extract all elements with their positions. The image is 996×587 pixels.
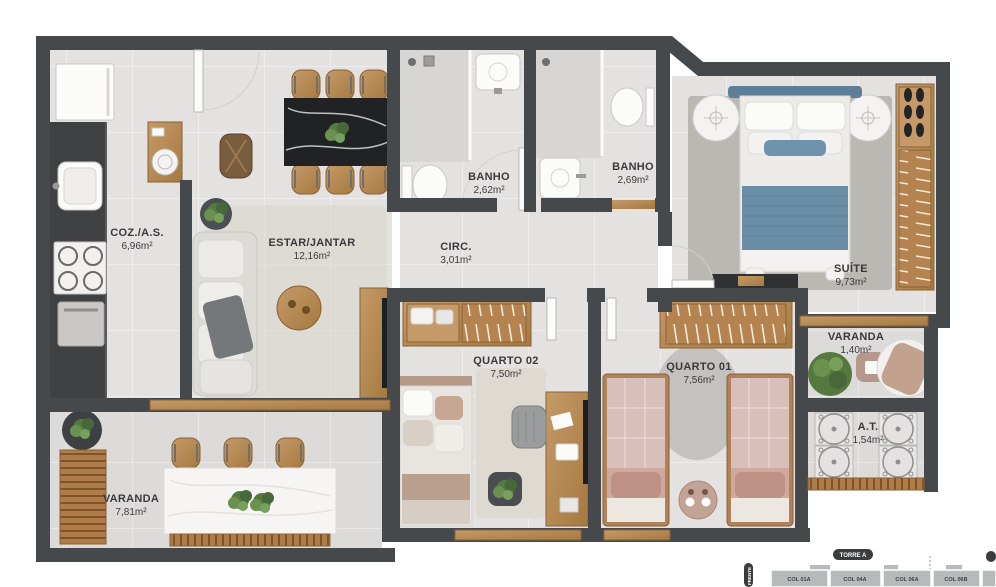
room-name: VARANDA [103, 492, 159, 506]
room-label-banho-1: BANHO 2,62m² [468, 170, 510, 197]
room-label-banho-2: BANHO 2,69m² [612, 160, 654, 187]
wall-bottom [36, 548, 395, 562]
room-label-area-tecnica: A.T. 1,54m² [852, 420, 883, 447]
balcony-bench [170, 534, 330, 546]
ac-condenser [815, 446, 853, 478]
wall-top-right [700, 62, 950, 76]
room-label-circulacao: CIRC. 3,01m² [440, 240, 471, 267]
bedroom2-blanket [402, 474, 470, 504]
bath2-shower-head [542, 58, 550, 66]
keyplan: TORRE A FRENTE COL 01A COL 04A COL 06A C… [744, 549, 996, 587]
bedroom1-side-table [679, 481, 717, 519]
balcony-table [164, 468, 336, 534]
suite-balcony-sliding-door[interactable] [800, 316, 928, 326]
room-name: QUARTO 01 [666, 360, 731, 374]
room-name: BANHO [468, 170, 510, 184]
room-name: BANHO [612, 160, 654, 174]
wall-left [36, 36, 50, 562]
room-area: 3,01m² [440, 254, 471, 267]
coffee-table [277, 286, 321, 330]
unit-label: COL 01A [787, 577, 810, 583]
bath1-shower-head [408, 58, 416, 66]
bedroom2-headboard [400, 376, 472, 386]
suite-bed-cushion [764, 140, 826, 156]
suite-wardrobe-hangers [899, 150, 931, 287]
fridge [56, 64, 114, 120]
bath1-basin [476, 54, 520, 90]
bedroom1-window [604, 530, 670, 540]
washing-machine [152, 149, 178, 175]
room-area: 1,40m² [828, 344, 884, 357]
room-area: 1,54m² [852, 434, 883, 447]
bath2-threshold [612, 200, 655, 209]
room-area: 2,62m² [468, 184, 510, 197]
entry-door[interactable] [194, 50, 203, 112]
room-area: 6,96m² [110, 240, 163, 253]
room-name: A.T. [852, 420, 883, 434]
unit-label: COL 06A [895, 577, 918, 583]
keyplan-side-label: FRENTE [747, 567, 752, 585]
room-area: 2,69m² [612, 174, 654, 187]
keyplan-units [771, 565, 996, 587]
bedroom2-window [455, 530, 581, 540]
room-area: 9,73m² [834, 276, 868, 289]
room-name: ESTAR/JANTAR [269, 236, 356, 250]
balcony-sliding-door[interactable] [150, 400, 390, 410]
bedroom2-door[interactable] [547, 298, 556, 340]
bedroom2-wardrobe-hangers [462, 304, 526, 342]
room-name: QUARTO 02 [473, 354, 538, 368]
room-area: 7,50m² [473, 368, 538, 381]
room-label-estar-jantar: ESTAR/JANTAR 12,16m² [269, 236, 356, 263]
bedroom1-bed-left [603, 374, 669, 526]
tower-a-label: TORRE A [840, 553, 867, 559]
room-area: 12,16m² [269, 250, 356, 263]
tech-area-louver [808, 478, 924, 490]
bath2-basin [540, 158, 580, 198]
room-label-varanda-suite: VARANDA 1,40m² [828, 330, 884, 357]
bath2-shower-floor [536, 50, 602, 158]
kitchen-faucet [53, 183, 60, 190]
suite-door[interactable] [672, 280, 714, 288]
room-area: 7,81m² [103, 506, 159, 519]
unit-label: COL 04A [843, 577, 866, 583]
room-name: COZ./A.S. [110, 226, 163, 240]
bath1-shower-floor [400, 50, 470, 162]
wall-right [936, 62, 950, 328]
bedroom1-wardrobe-hangers [666, 304, 786, 344]
ac-condenser [879, 446, 917, 478]
room-label-quarto-02: QUARTO 02 7,50m² [473, 354, 538, 381]
bath2-toilet [611, 88, 643, 126]
tower-pill-cut [986, 551, 996, 562]
wall-top [36, 36, 662, 50]
balcony-plant [808, 352, 852, 396]
balcony-slat-bench [60, 450, 106, 544]
ac-condenser [815, 413, 853, 445]
unit-label: COL 06B [944, 577, 967, 583]
room-name: SUÍTE [834, 262, 868, 276]
room-name: CIRC. [440, 240, 471, 254]
ac-condenser [879, 413, 917, 445]
bedroom1-door[interactable] [607, 298, 616, 340]
desk-chair [512, 406, 546, 448]
room-label-cozinha: COZ./A.S. 6,96m² [110, 226, 163, 253]
room-label-varanda: VARANDA 7,81m² [103, 492, 159, 519]
unit-box [982, 570, 996, 587]
room-name: VARANDA [828, 330, 884, 344]
room-label-quarto-01: QUARTO 01 7,56m² [666, 360, 731, 387]
floorplan-canvas: TORRE A FRENTE COL 01A COL 04A COL 06A C… [0, 0, 996, 587]
bedroom1-bed-right [727, 374, 793, 526]
room-area: 7,56m² [666, 374, 731, 387]
room-label-suite: SUÍTE 9,73m² [834, 262, 868, 289]
